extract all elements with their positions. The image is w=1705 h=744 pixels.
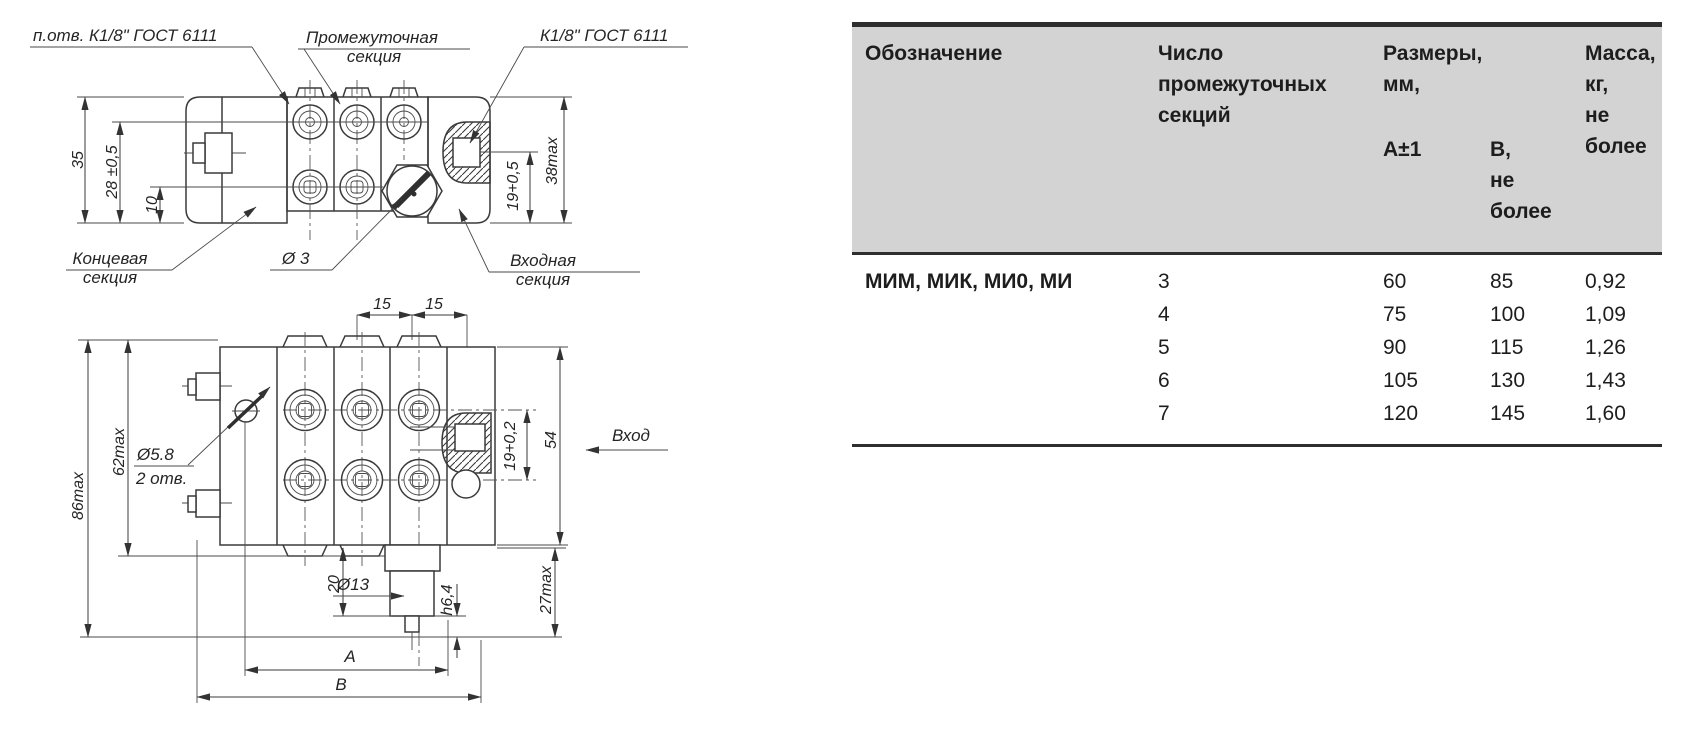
dim-28: 28 ±0,5 bbox=[104, 145, 121, 199]
cell-mass: 0,92 bbox=[1585, 265, 1662, 298]
technical-drawing: 35 28 ±0,5 10 19+0,5 38max п.отв. К1/8" … bbox=[0, 0, 800, 744]
label-input-section-line2: секция bbox=[516, 270, 570, 289]
catalog-page: 35 28 ±0,5 10 19+0,5 38max п.отв. К1/8" … bbox=[0, 0, 1705, 744]
top-view-labels: п.отв. К1/8" ГОСТ 6111 Промежуточная сек… bbox=[30, 26, 688, 289]
label-hole-diameter: Ø5.8 bbox=[136, 445, 174, 464]
cell-b: 145 bbox=[1490, 397, 1585, 430]
dim-10: 10 bbox=[144, 196, 161, 214]
table-row: 7 120 145 1,60 bbox=[852, 397, 1662, 430]
table-row: 6 105 130 1,43 bbox=[852, 364, 1662, 397]
side-bolt-top-view bbox=[184, 133, 246, 173]
col-header-dimensions: Размеры, мм, bbox=[1383, 38, 1482, 100]
dim-15-left: 15 bbox=[373, 296, 391, 313]
cell-mass: 1,60 bbox=[1585, 397, 1662, 430]
cell-sections: 7 bbox=[1158, 397, 1383, 430]
label-ports-thread: п.отв. К1/8" ГОСТ 6111 bbox=[33, 26, 217, 45]
front-dimensions-right: 19+0,2 54 Вход bbox=[497, 347, 668, 545]
table-row: 5 90 115 1,26 bbox=[852, 331, 1662, 364]
bolt-heads-bottom bbox=[283, 545, 384, 556]
table-row: МИМ, МИК, МИ0, МИ 3 60 85 0,92 bbox=[852, 265, 1662, 298]
label-diameter-3: Ø 3 bbox=[281, 249, 310, 268]
spec-table-header: Обозначение Число промежуточных секций Р… bbox=[852, 22, 1662, 255]
label-inlet-thread: К1/8" ГОСТ 6111 bbox=[540, 26, 668, 45]
dim-35: 35 bbox=[70, 151, 87, 169]
label-input-section-line1: Входная bbox=[510, 251, 576, 270]
col-header-b: В, не более bbox=[1490, 134, 1552, 227]
spec-table: Обозначение Число промежуточных секций Р… bbox=[852, 22, 1662, 447]
col-header-sections: Число промежуточных секций bbox=[1158, 38, 1327, 131]
dim-B: B bbox=[335, 675, 346, 694]
top-view: 35 28 ±0,5 10 19+0,5 38max п.отв. К1/8" … bbox=[30, 26, 688, 289]
cell-sections: 3 bbox=[1158, 265, 1383, 298]
dim-86max: 86max bbox=[70, 471, 87, 520]
dim-62max: 62max bbox=[111, 427, 128, 476]
dim-38max: 38max bbox=[544, 136, 561, 185]
cell-mass: 1,43 bbox=[1585, 364, 1662, 397]
col-header-mass: Масса, кг, не более bbox=[1585, 38, 1656, 162]
label-end-section-line2: секция bbox=[83, 268, 137, 287]
label-intermediate-line2: секция bbox=[347, 47, 401, 66]
col-header-a: А±1 bbox=[1383, 134, 1421, 165]
pitch-dimensions: 15 15 bbox=[357, 296, 467, 350]
label-end-section-line1: Концевая bbox=[72, 249, 147, 268]
cell-a: 60 bbox=[1383, 265, 1490, 298]
label-inlet-arrow: Вход bbox=[612, 426, 650, 445]
dim-27max: 27max bbox=[538, 565, 555, 615]
cell-a: 90 bbox=[1383, 331, 1490, 364]
table-row: 4 75 100 1,09 bbox=[852, 298, 1662, 331]
inlet-port-section-top bbox=[443, 122, 538, 183]
cell-b: 130 bbox=[1490, 364, 1585, 397]
cell-a: 75 bbox=[1383, 298, 1490, 331]
label-diameter-13: Ø13 bbox=[336, 575, 370, 594]
cell-designation: МИМ, МИК, МИ0, МИ bbox=[865, 265, 1158, 298]
cell-b: 115 bbox=[1490, 331, 1585, 364]
col-header-designation: Обозначение bbox=[865, 38, 1002, 69]
dim-54: 54 bbox=[543, 431, 560, 449]
dim-19-front: 19+0,2 bbox=[502, 421, 519, 470]
top-view-dimensions: 35 28 ±0,5 10 19+0,5 38max bbox=[70, 97, 572, 223]
cell-a: 105 bbox=[1383, 364, 1490, 397]
dim-15-right: 15 bbox=[425, 296, 443, 313]
cell-mass: 1,09 bbox=[1585, 298, 1662, 331]
label-hole-count: 2 отв. bbox=[135, 469, 187, 488]
cell-mass: 1,26 bbox=[1585, 331, 1662, 364]
cell-b: 100 bbox=[1490, 298, 1585, 331]
mounting-hole-label: Ø5.8 2 отв. bbox=[134, 445, 194, 488]
dim-A: A bbox=[343, 647, 355, 666]
cell-a: 120 bbox=[1383, 397, 1490, 430]
label-intermediate-line1: Промежуточная bbox=[306, 28, 438, 47]
cell-sections: 6 bbox=[1158, 364, 1383, 397]
dim-19-top: 19+0,5 bbox=[505, 161, 522, 210]
cell-b: 85 bbox=[1490, 265, 1585, 298]
cell-sections: 4 bbox=[1158, 298, 1383, 331]
mounting-hole-lower bbox=[452, 470, 480, 498]
rotation-indicator bbox=[382, 165, 442, 217]
outlet-fitting bbox=[385, 545, 440, 650]
cell-sections: 5 bbox=[1158, 331, 1383, 364]
dim-6-4: h6,4 bbox=[439, 584, 456, 615]
spec-table-body: МИМ, МИК, МИ0, МИ 3 60 85 0,92 4 75 100 … bbox=[852, 255, 1662, 447]
bottom-view: 15 15 bbox=[70, 296, 668, 703]
